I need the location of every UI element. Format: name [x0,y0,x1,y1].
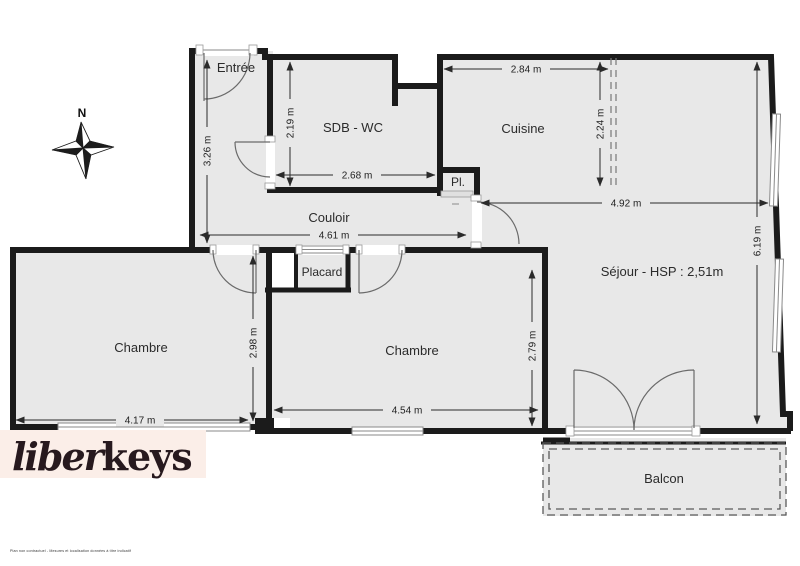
svg-text:4.54 m: 4.54 m [392,406,423,417]
dim-sejour-height: 6.19 m [751,217,764,265]
svg-text:4.17 m: 4.17 m [125,416,156,427]
room-label-balcon: Balcon [644,471,684,486]
dim-chambre2-height: 2.79 m [526,322,539,370]
room-label-sejour: Séjour - HSP : 2,51m [601,264,724,279]
dim-entree-length: 3.26 m [201,127,214,175]
liberkeys-logo: liberkeys [0,430,206,478]
room-label-sdb-wc: SDB - WC [323,120,383,135]
dim-couloir-length: 4.61 m [310,229,358,242]
svg-text:6.19 m: 6.19 m [753,226,764,257]
dim-chambre2-width: 4.54 m [383,404,431,417]
dim-cuisine-depth: 2.24 m [594,100,607,148]
svg-text:2.68 m: 2.68 m [342,171,373,182]
svg-text:2.24 m: 2.24 m [596,109,607,140]
compass-north-label: N [78,106,87,120]
room-label-couloir: Couloir [308,210,350,225]
room-label-pl: Pl. [451,175,465,189]
room-chambre1-floor [13,250,269,427]
exterior-notch [398,41,437,84]
compass-icon: N [52,106,114,179]
dim-chambre1-width: 4.17 m [116,414,164,427]
svg-text:3.26 m: 3.26 m [203,136,214,167]
svg-text:4.61 m: 4.61 m [319,231,350,242]
room-couloir-floor [273,190,477,250]
pl-shelf [441,191,473,197]
room-label-entree: Entrée [217,60,255,75]
dim-chambre1-height: 2.98 m [247,319,260,367]
svg-text:2.79 m: 2.79 m [528,331,539,362]
room-label-chambre-2: Chambre [385,343,438,358]
floorplan-canvas: 3.26 m 2.19 m 2.68 m 2.84 m 2.24 m 4.92 … [0,0,800,566]
floorplan-drawing: 3.26 m 2.19 m 2.68 m 2.84 m 2.24 m 4.92 … [0,0,800,566]
dim-cuisine-width: 2.84 m [502,63,550,76]
svg-text:2.98 m: 2.98 m [249,328,260,359]
svg-text:4.92 m: 4.92 m [611,199,642,210]
logo-script-text: liber [12,441,102,473]
svg-text:2.84 m: 2.84 m [511,65,542,76]
room-label-cuisine: Cuisine [501,121,544,136]
logo-bold-text: keys [102,441,192,473]
room-label-chambre-1: Chambre [114,340,167,355]
dim-sdb-height: 2.19 m [284,99,297,147]
svg-text:2.19 m: 2.19 m [286,108,297,139]
room-label-placard: Placard [302,265,343,279]
dim-sejour-width: 4.92 m [602,197,650,210]
dim-sdb-width: 2.68 m [333,169,381,182]
disclaimer-text: Plan non contractuel - Mesures et locali… [10,549,131,553]
placard-open-compartment [269,251,295,288]
